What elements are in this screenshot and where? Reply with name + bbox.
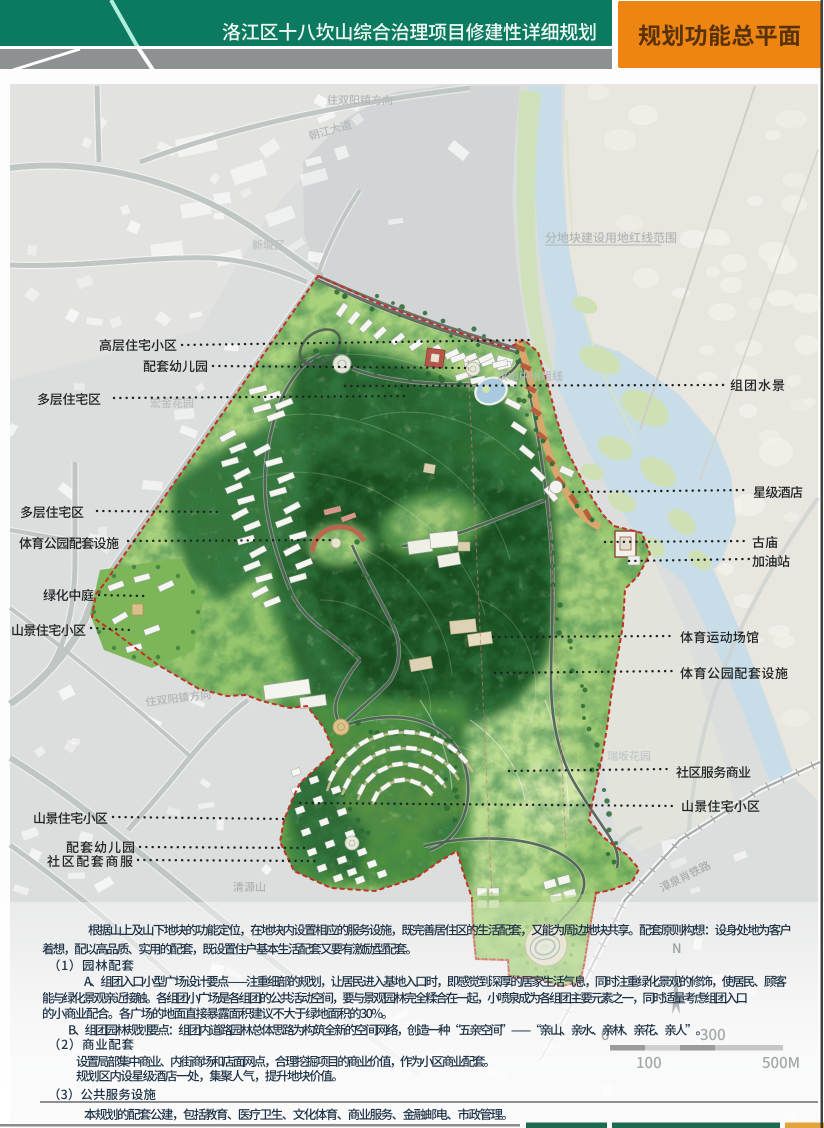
svg-text:根据山上及山下地块的功能定位，在地块内设置相应的服务设施，既: 根据山上及山下地块的功能定位，在地块内设置相应的服务设施，既完善居住区的生活配套… xyxy=(88,920,792,939)
svg-text:配套幼儿园: 配套幼儿园 xyxy=(143,356,208,375)
svg-text:N: N xyxy=(672,938,682,957)
svg-text:洛江区十八坎山综合治理项目修建性详细规划: 洛江区十八坎山综合治理项目修建性详细规划 xyxy=(222,18,597,45)
svg-text:山景住宅小区: 山景住宅小区 xyxy=(11,620,86,639)
svg-text:山景住宅小区: 山景住宅小区 xyxy=(33,808,108,827)
svg-text:规划区内设星级酒店一处，集聚人气，提升地块价值。: 规划区内设星级酒店一处，集聚人气，提升地块价值。 xyxy=(76,1066,344,1085)
svg-text:往双阳镇方向: 往双阳镇方向 xyxy=(327,92,393,108)
svg-text:古庙: 古庙 xyxy=(752,532,778,551)
svg-text:（3）公共服务设施: （3）公共服务设施 xyxy=(48,1084,156,1103)
svg-text:星级酒店: 星级酒店 xyxy=(753,482,803,501)
svg-text:宏金花园: 宏金花园 xyxy=(150,395,194,411)
svg-text:本规划的配套公建，包括教育、医疗卫生、文化体育、商业服务、金: 本规划的配套公建，包括教育、医疗卫生、文化体育、商业服务、金融邮电、市政管理。 xyxy=(84,1104,514,1123)
svg-text:清源山: 清源山 xyxy=(233,879,266,895)
svg-text:体育公园配套设施: 体育公园配套设施 xyxy=(19,533,119,552)
svg-text:分地块建设用地红线范围: 分地块建设用地红线范围 xyxy=(545,229,677,246)
svg-text:规划功能总平面: 规划功能总平面 xyxy=(638,17,801,51)
svg-text:社区服务商业: 社区服务商业 xyxy=(676,762,751,781)
svg-text:新城区: 新城区 xyxy=(252,237,285,253)
svg-text:多层住宅区: 多层住宅区 xyxy=(37,389,101,408)
svg-text:组团水景: 组团水景 xyxy=(730,375,785,394)
svg-text:100: 100 xyxy=(636,1052,662,1073)
svg-text:500M: 500M xyxy=(762,1052,800,1073)
svg-text:B、组团园林规划要点：组团内道路园林总体思路为构筑全新的空间: B、组团园林规划要点：组团内道路园林总体思路为构筑全新的空间网络，创造一种“五亲… xyxy=(68,1020,708,1039)
svg-text:汉山中川组线: 汉山中川组线 xyxy=(497,368,563,384)
svg-text:绿化中庭: 绿化中庭 xyxy=(43,585,94,604)
svg-text:体育运动场馆: 体育运动场馆 xyxy=(680,627,759,646)
svg-text:体育公园配套设施: 体育公园配套设施 xyxy=(680,663,788,682)
svg-text:加油站: 加油站 xyxy=(752,551,790,570)
svg-text:山景住宅小区: 山景住宅小区 xyxy=(681,796,760,815)
svg-text:多层住宅区: 多层住宅区 xyxy=(20,502,84,521)
svg-text:高层住宅小区: 高层住宅小区 xyxy=(99,335,177,354)
svg-text:瑞坂花园: 瑞坂花园 xyxy=(607,748,651,764)
svg-text:社区配套商服: 社区配套商服 xyxy=(47,851,133,870)
